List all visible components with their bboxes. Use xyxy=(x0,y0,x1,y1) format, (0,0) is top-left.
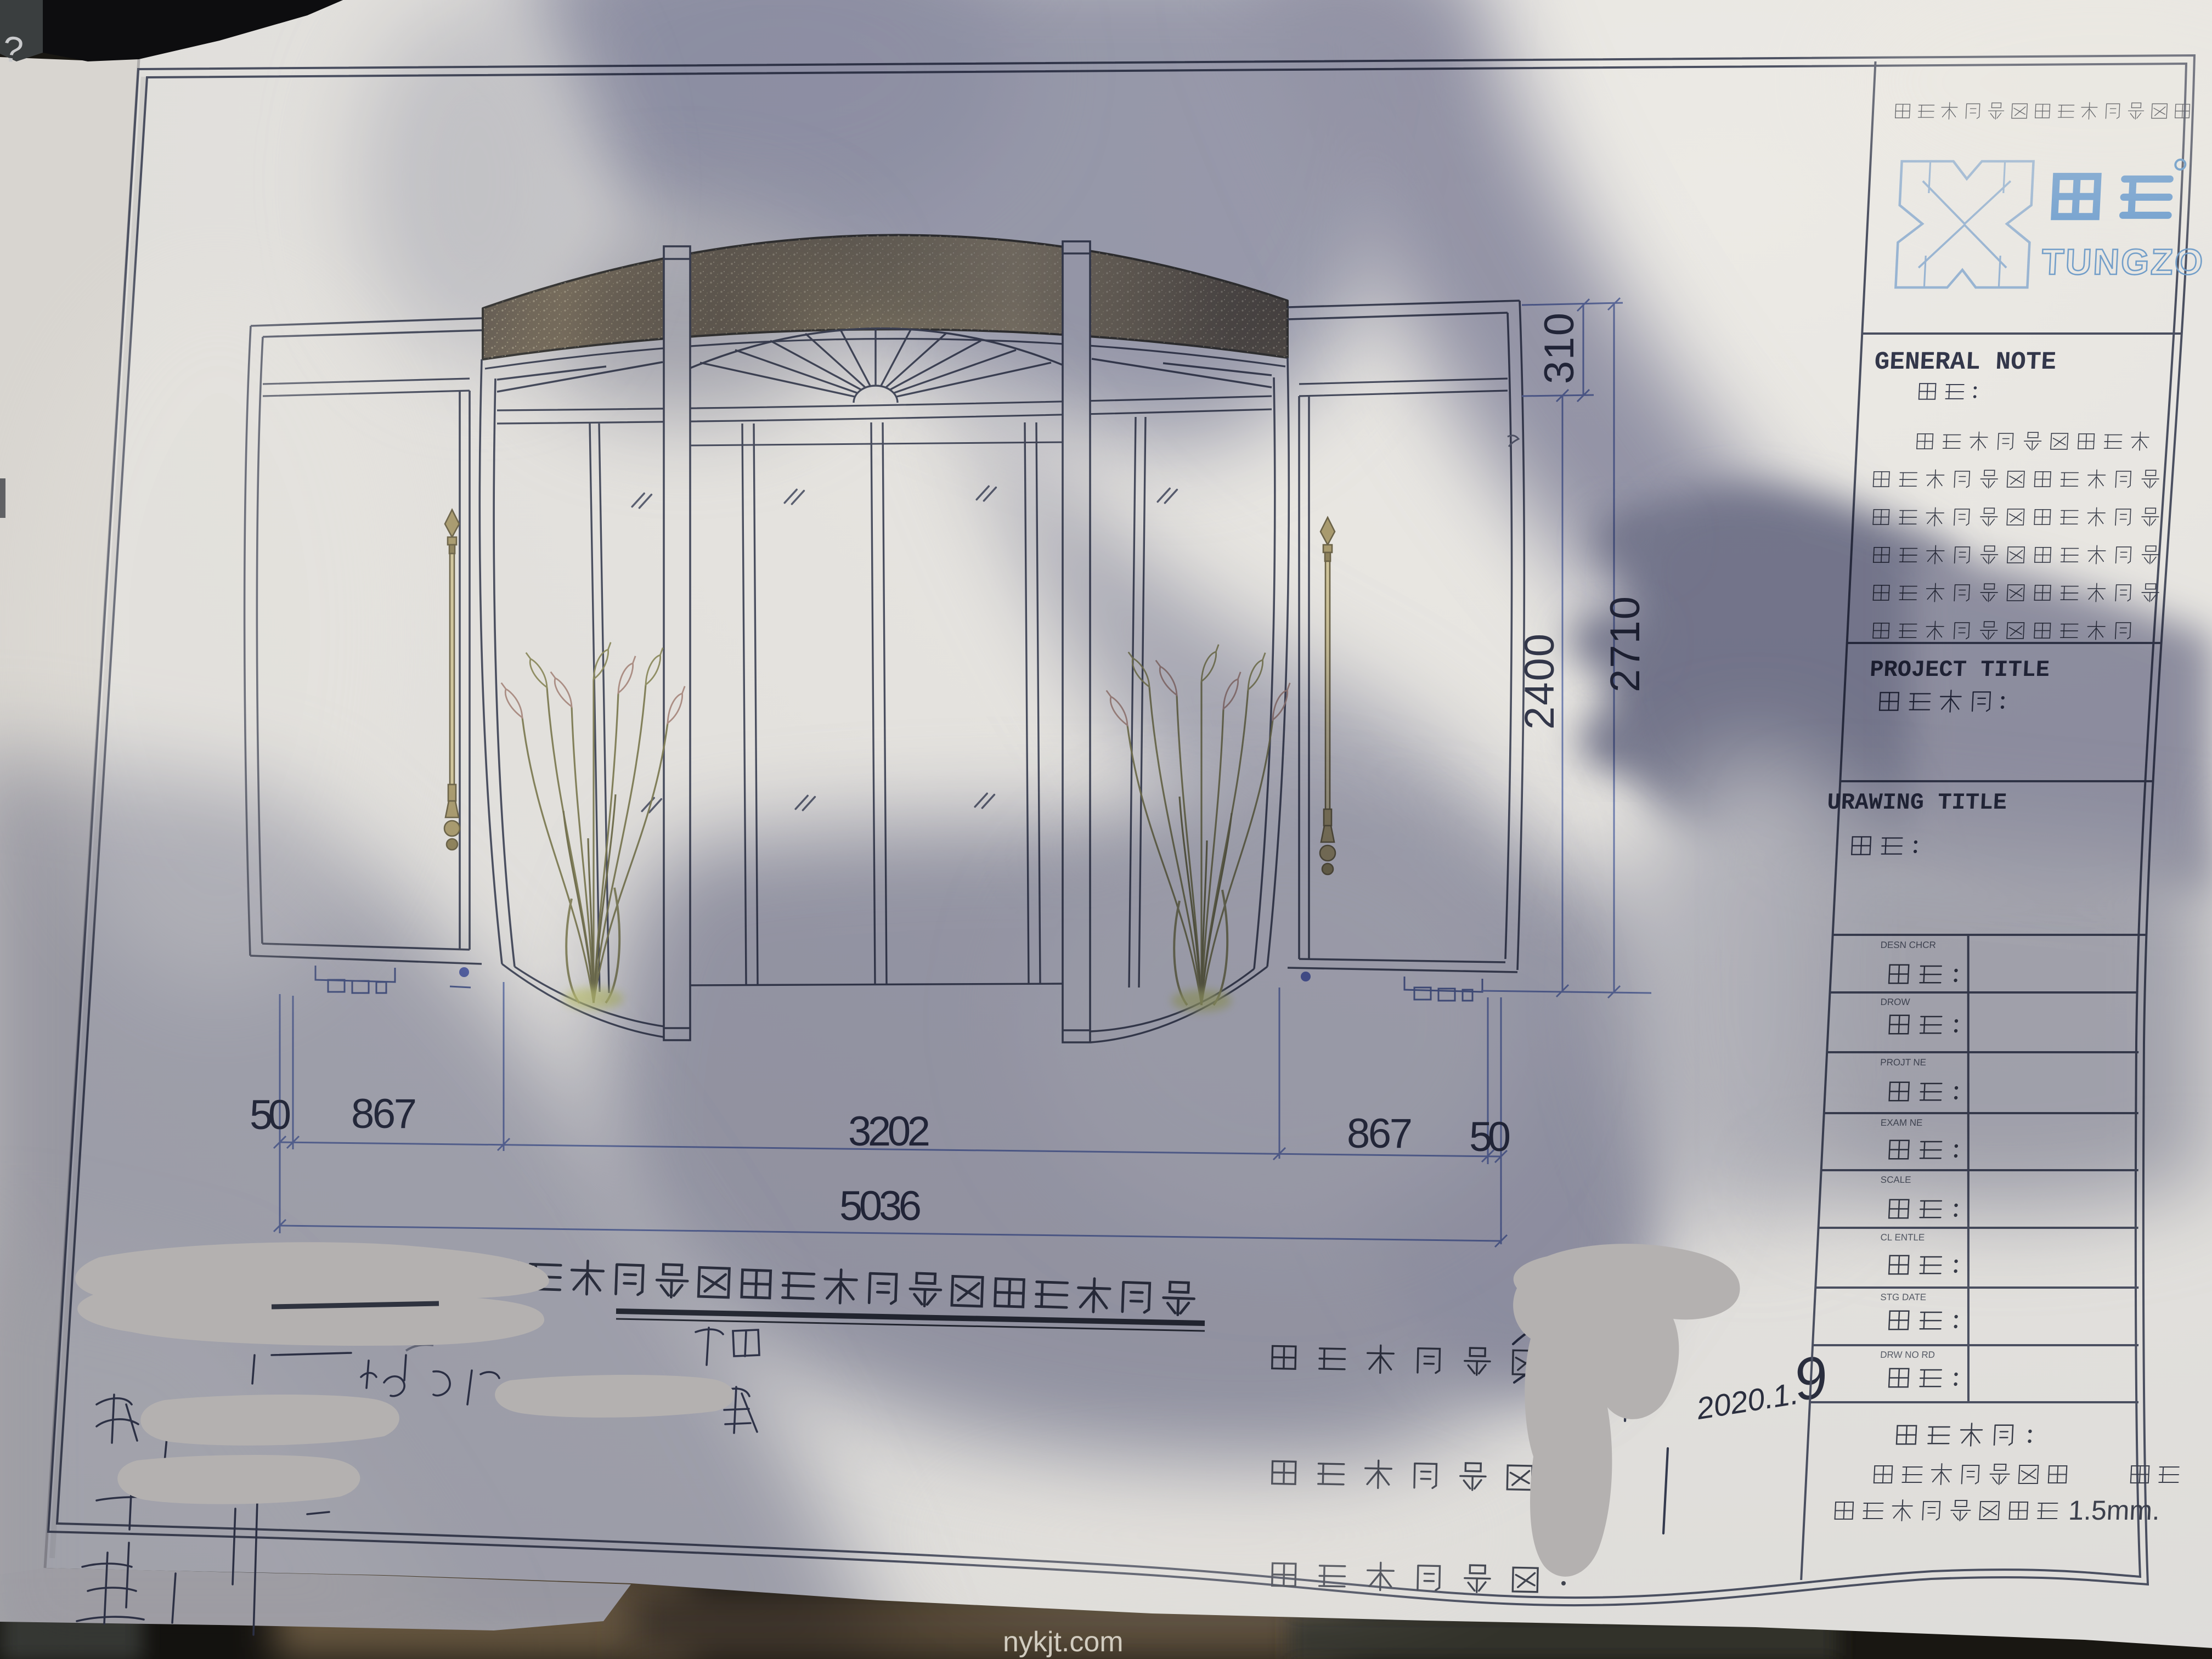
svg-text:TUNGZO: TUNGZO xyxy=(2041,241,2205,282)
svg-text:DRW NO RD: DRW NO RD xyxy=(1880,1350,1936,1360)
svg-text:STG DATE: STG DATE xyxy=(1880,1292,1927,1302)
svg-text:2400: 2400 xyxy=(1516,634,1563,730)
svg-text:1.5mm.: 1.5mm. xyxy=(2068,1495,2160,1526)
svg-text:CL ENTLE: CL ENTLE xyxy=(1880,1232,1925,1243)
svg-text:nykjt.com: nykjt.com xyxy=(1003,1626,1124,1658)
svg-text:GENERAL NOTE: GENERAL NOTE xyxy=(1874,348,2057,376)
